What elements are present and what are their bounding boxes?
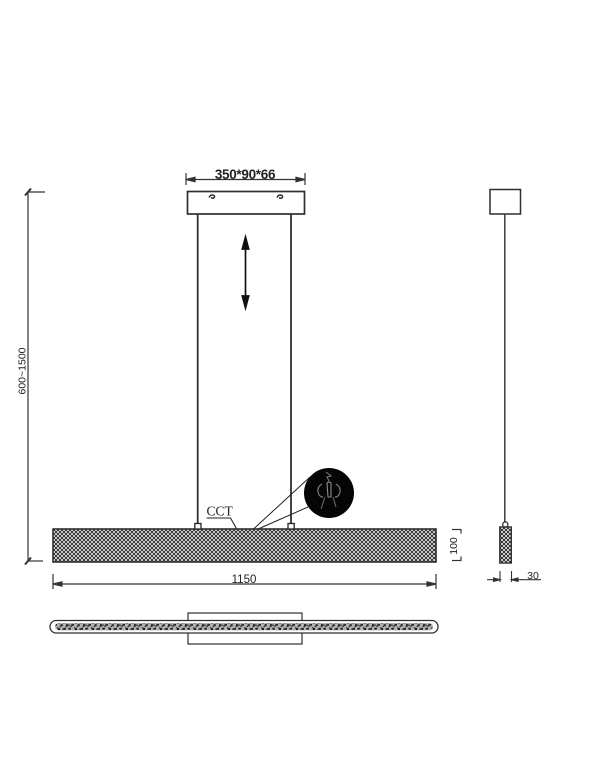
svg-text:600~1500: 600~1500	[17, 347, 29, 394]
svg-text:100: 100	[448, 537, 460, 555]
svg-text:CCT: CCT	[207, 504, 234, 519]
svg-text:30: 30	[527, 570, 539, 582]
